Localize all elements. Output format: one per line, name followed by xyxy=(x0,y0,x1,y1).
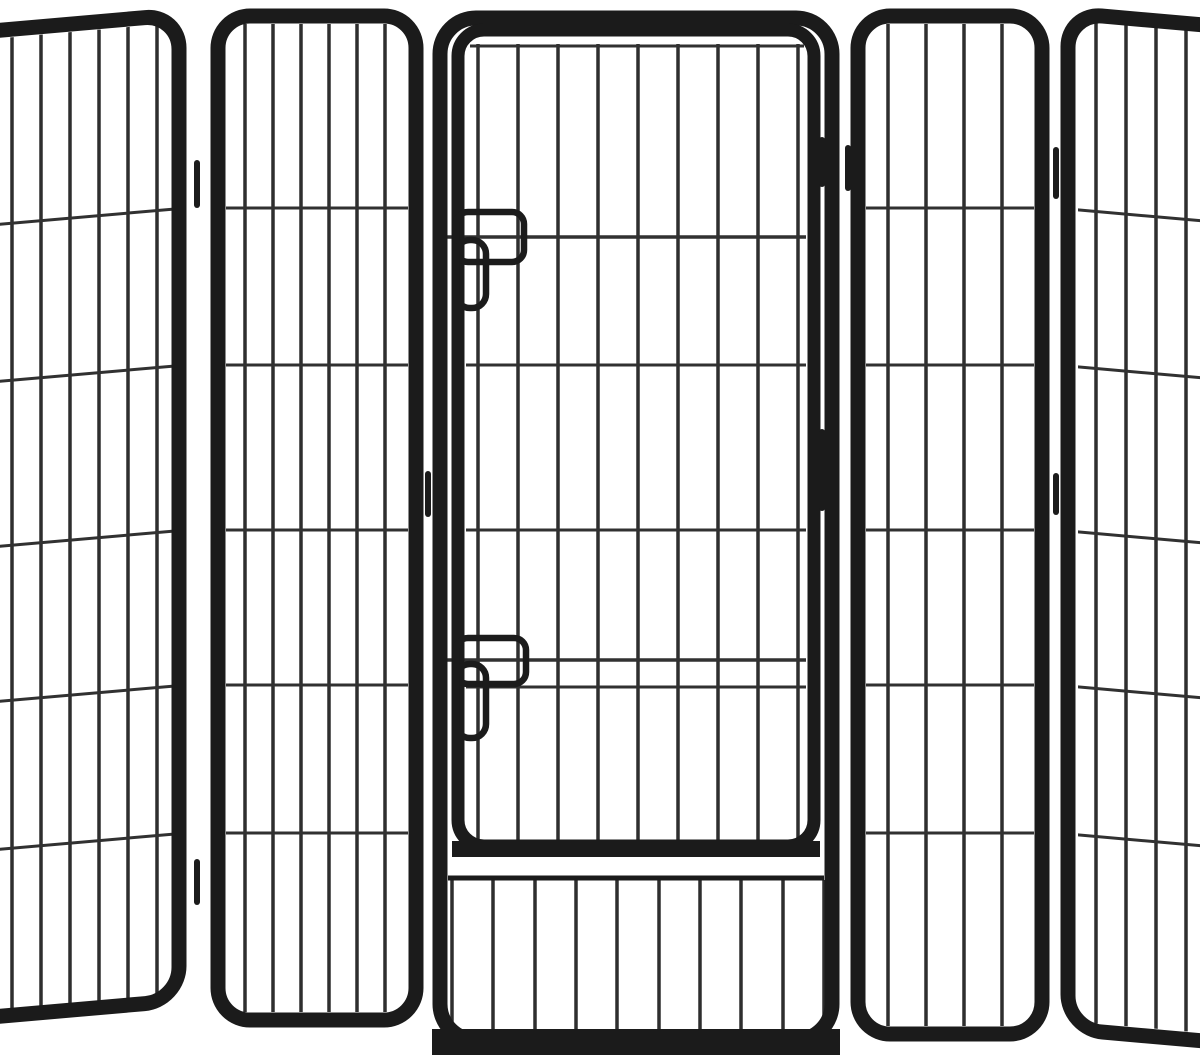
playpen-scene xyxy=(0,0,1200,1058)
pet-playpen-product-photo xyxy=(0,0,1200,1058)
